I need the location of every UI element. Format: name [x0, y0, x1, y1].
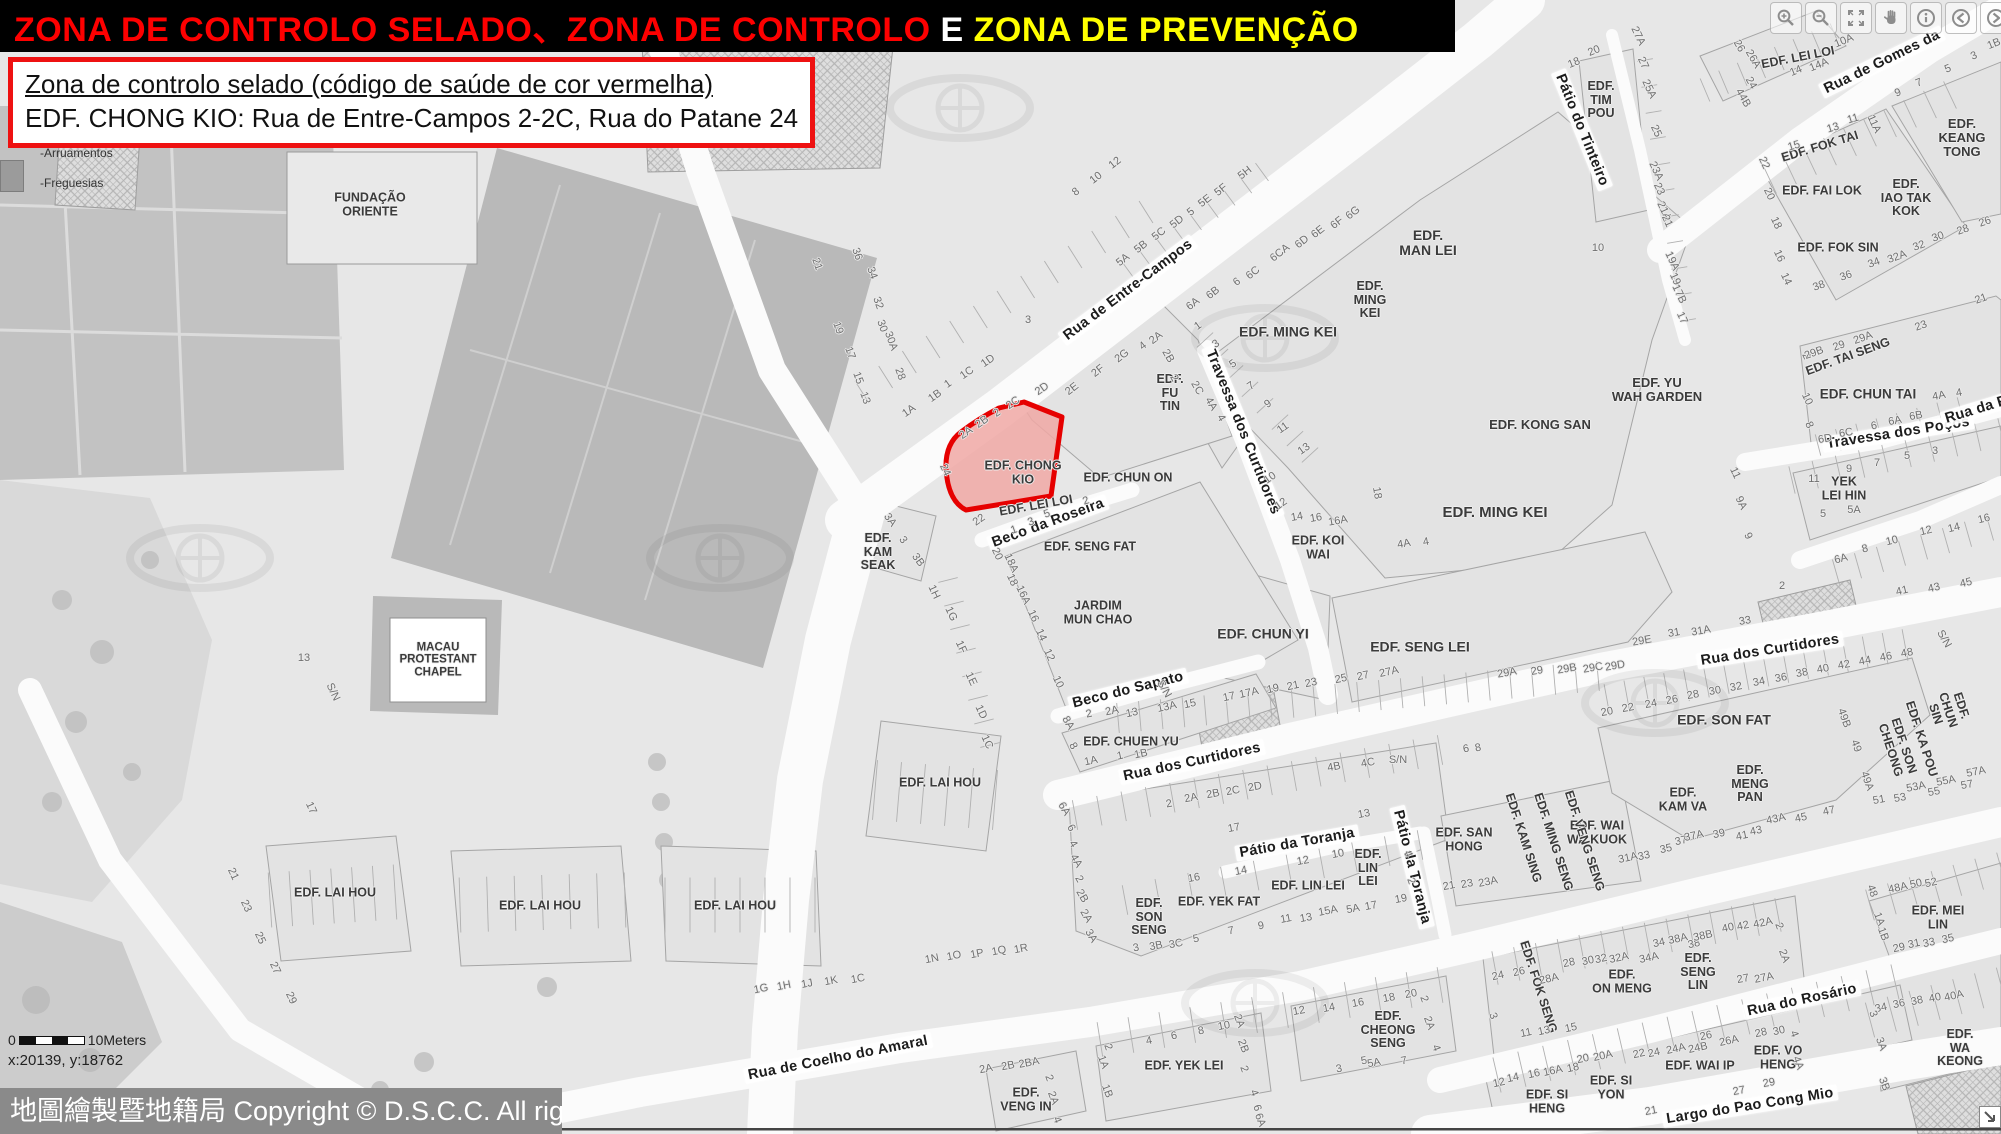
resize-arrow-icon	[1983, 1110, 1997, 1124]
title-segment: ZONA DE PREVENÇÃO	[974, 11, 1359, 49]
map-canvas	[0, 0, 2001, 1134]
pan-button[interactable]	[1875, 2, 1907, 34]
arrow-left-icon	[1951, 8, 1971, 28]
zoom-in-button[interactable]	[1770, 2, 1802, 34]
scale-zero-label: 0	[8, 1032, 16, 1048]
next-view-button[interactable]	[1980, 2, 2001, 34]
map-viewport[interactable]: Rua de Entre-CamposTravessa dos Curtidor…	[0, 0, 2001, 1134]
sealed-zone-info-box: Zona de controlo selado (código de saúde…	[8, 57, 815, 148]
map-application: Rua de Entre-CamposTravessa dos Curtidor…	[0, 0, 2001, 1134]
zoom-out-button[interactable]	[1805, 2, 1837, 34]
page-title: ZONA DE CONTROLO SELADO、ZONA DE CONTROLO…	[14, 2, 1359, 51]
title-segment: E	[931, 11, 974, 49]
zoom-in-icon	[1776, 8, 1796, 28]
pan-hand-icon	[1881, 8, 1901, 28]
copyright-bar: 地圖繪製暨地籍局 Copyright © D.S.C.C. All rights…	[0, 1088, 562, 1134]
layer-item-freguesias[interactable]: -Freguesias	[40, 176, 103, 190]
chapel-building	[390, 618, 486, 702]
full-extent-button[interactable]	[1840, 2, 1872, 34]
map-toolbar	[1770, 2, 2001, 34]
info-box-address: EDF. CHONG KIO: Rua de Entre-Campos 2-2C…	[25, 101, 798, 135]
info-button[interactable]	[1910, 2, 1942, 34]
layers-panel-icon[interactable]	[0, 160, 24, 192]
resize-corner-handle[interactable]	[1979, 1106, 2001, 1128]
info-icon	[1916, 8, 1936, 28]
title-segment: ZONA DE CONTROLO SELADO、ZONA DE CONTROLO	[14, 11, 931, 49]
cursor-coordinates: x:20139, y:18762	[8, 1052, 123, 1069]
zoom-out-icon	[1811, 8, 1831, 28]
previous-view-button[interactable]	[1945, 2, 1977, 34]
scale-bar-graphic	[19, 1036, 85, 1045]
scale-distance-label: 10Meters	[88, 1032, 146, 1048]
info-box-heading: Zona de controlo selado (código de saúde…	[25, 67, 798, 101]
scale-bar: 0 10Meters	[8, 1032, 146, 1048]
arrow-right-icon	[1986, 8, 2001, 28]
full-extent-icon	[1846, 8, 1866, 28]
title-bar: ZONA DE CONTROLO SELADO、ZONA DE CONTROLO…	[0, 0, 1455, 52]
layer-item-arruamentos[interactable]: -Arruamentos	[40, 146, 113, 160]
